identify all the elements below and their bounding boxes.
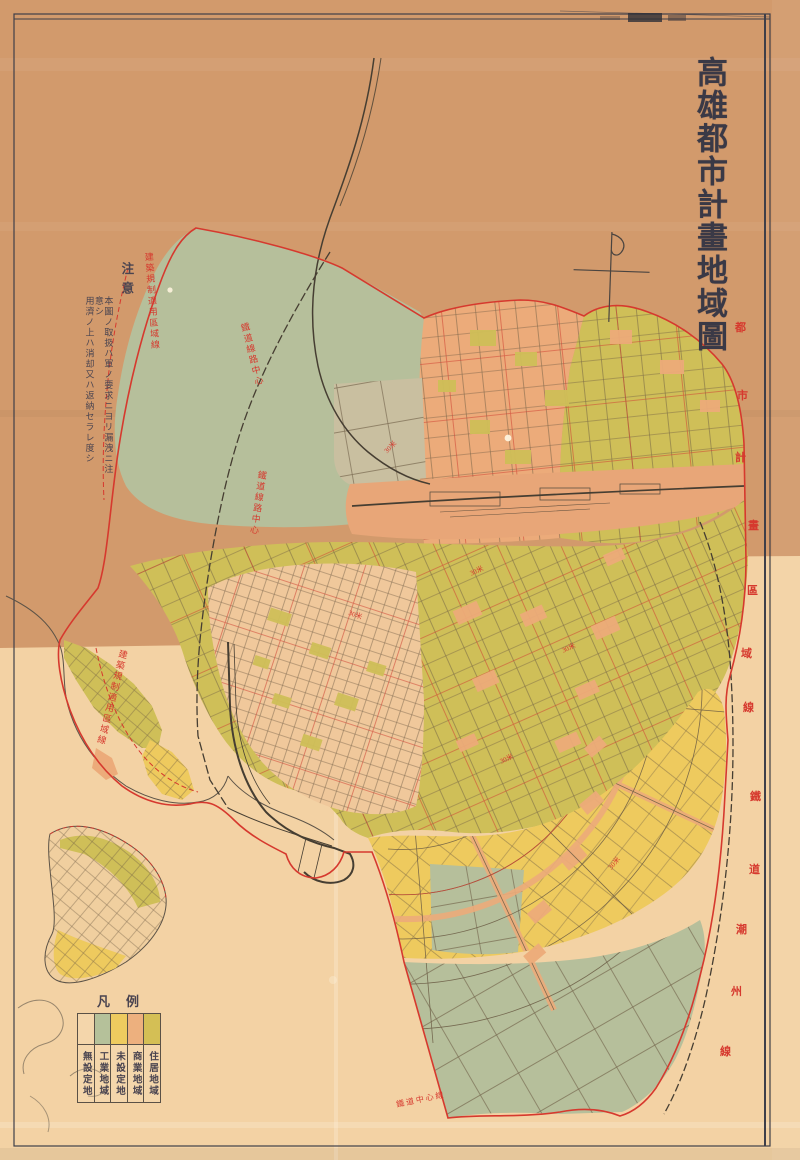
legend: 凡例 無設定地 工業地域 未設定地 商業地域 住居地域	[77, 991, 161, 1103]
legend-label: 商業地域	[128, 1045, 144, 1102]
boundary-label-char: 域	[741, 648, 752, 660]
legend-item: 工業地域	[95, 1014, 112, 1102]
notice-line: 用濟ノ上ハ消却又ハ返納セラレ度シ	[84, 262, 93, 477]
railway-label-char: 潮	[736, 924, 747, 936]
legend-label: 未設定地	[111, 1045, 127, 1102]
railway-label-char: 鐵	[750, 791, 761, 803]
legend-label: 住居地域	[144, 1045, 160, 1102]
legend-swatch	[128, 1014, 144, 1045]
notice-line: 本圖ノ取扱ハ軍ノ要求ニヨリ漏洩ニ注意シ	[93, 262, 112, 477]
boundary-label-char: 區	[747, 585, 758, 597]
legend-swatch	[95, 1014, 111, 1045]
legend-label: 無設定地	[78, 1045, 94, 1102]
railway-label-char: 州	[731, 986, 742, 998]
handling-notice: 注意 本圖ノ取扱ハ軍ノ要求ニヨリ漏洩ニ注意シ 用濟ノ上ハ消却又ハ返納セラレ度シ	[84, 262, 136, 477]
legend-item: 未設定地	[111, 1014, 128, 1102]
legend-title: 凡例	[77, 991, 161, 1010]
railway-label-char: 線	[720, 1046, 731, 1058]
boundary-label-char: 都	[735, 322, 746, 334]
boundary-label-char: 線	[743, 702, 754, 714]
railway-label-char: 道	[749, 864, 760, 876]
boundary-label-char: 計	[735, 452, 746, 464]
map-sheet: 高雄都市計畫地域圖 注意 本圖ノ取扱ハ軍ノ要求ニヨリ漏洩ニ注意シ 用濟ノ上ハ消却…	[0, 0, 800, 1160]
map-artwork	[0, 0, 800, 1160]
map-title: 高雄都市計畫地域圖	[694, 56, 725, 353]
legend-swatch	[144, 1014, 160, 1045]
legend-item: 無設定地	[78, 1014, 95, 1102]
boundary-label-char: 市	[737, 390, 748, 402]
legend-item: 商業地域	[128, 1014, 145, 1102]
legend-swatch	[78, 1014, 94, 1045]
boundary-label-char: 畫	[748, 520, 759, 532]
legend-label: 工業地域	[95, 1045, 111, 1102]
legend-box: 無設定地 工業地域 未設定地 商業地域 住居地域	[77, 1013, 161, 1103]
legend-swatch	[111, 1014, 127, 1045]
legend-item: 住居地域	[144, 1014, 160, 1102]
notice-heading: 注意	[117, 262, 136, 477]
